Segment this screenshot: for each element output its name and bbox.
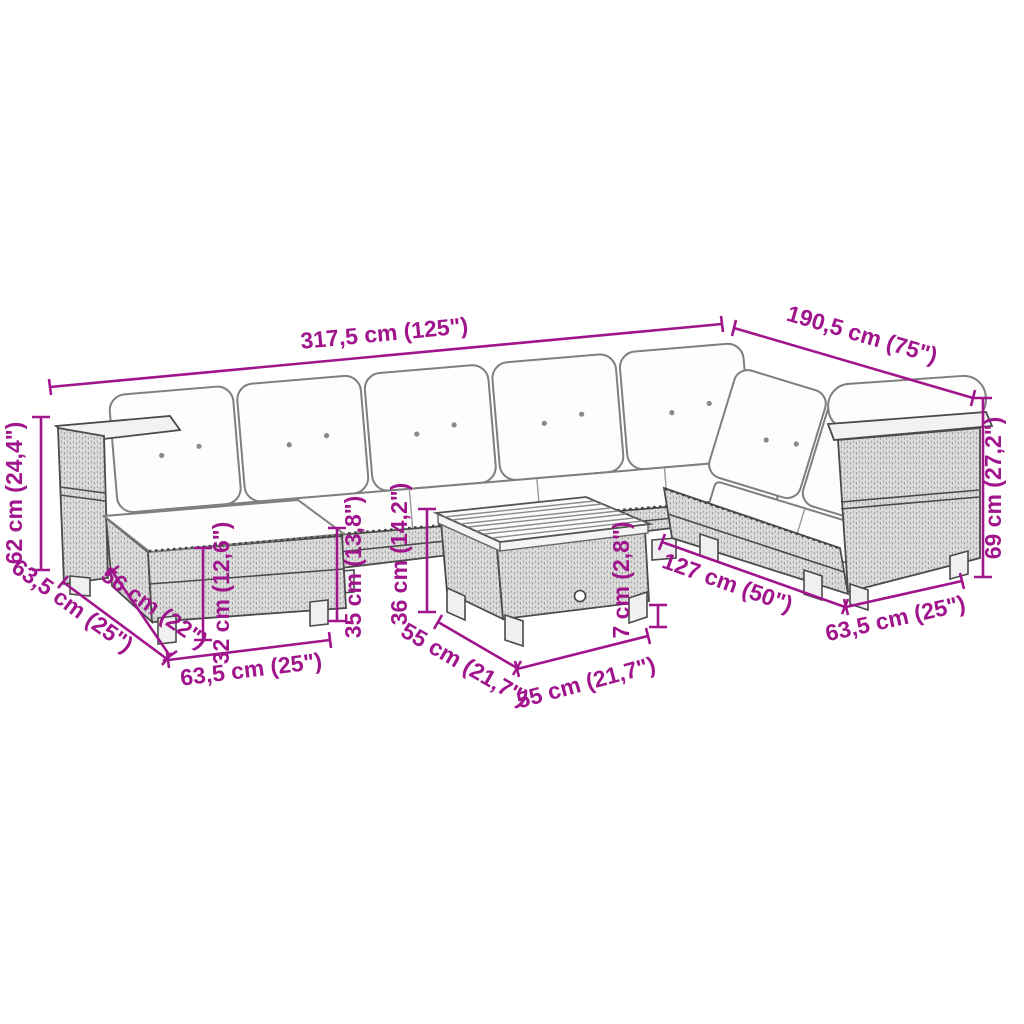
sofa-leg [950, 551, 968, 579]
dim-total-width-label: 317,5 cm (125") [299, 312, 469, 354]
dim-tabletop-thickness-label: 7 cm (2,8") [608, 521, 634, 638]
back-cushion [108, 385, 241, 513]
dim-total-depth-right-label: 190,5 cm (75") [784, 300, 940, 369]
dim-seat-height-label: 35 cm (13,8") [340, 496, 366, 639]
dim-right-arm-height-label: 69 cm (27,2") [980, 417, 1006, 560]
right-armrest [827, 374, 992, 610]
dim-table-width-label: 55 cm (21,7") [514, 651, 658, 713]
umbrella-hole [575, 591, 586, 602]
dim-left-arm-height-label: 62 cm (24,4") [1, 422, 27, 565]
garden-lounge-set-drawing: 317,5 cm (125") 190,5 cm (75") 69 cm (27… [0, 0, 1024, 1024]
back-cushion [491, 353, 624, 481]
back-cushion [236, 375, 369, 503]
dim-right-module-depth-label: 63,5 cm (25") [823, 590, 968, 646]
table-leg [505, 615, 523, 646]
dim-table-height-label: 36 cm (14,2") [386, 483, 412, 626]
back-cushion [364, 364, 497, 492]
dim-table-width: 55 cm (21,7") [514, 628, 658, 713]
dim-ottoman-width-label: 63,5 cm (25") [179, 647, 324, 690]
ottoman-leg [310, 600, 328, 626]
dim-ottoman-height-label: 32 cm (12,6") [208, 522, 234, 665]
dim-left-arm-height: 62 cm (24,4") [1, 417, 50, 570]
product-dimension-diagram: 317,5 cm (125") 190,5 cm (75") 69 cm (27… [0, 0, 1024, 1024]
